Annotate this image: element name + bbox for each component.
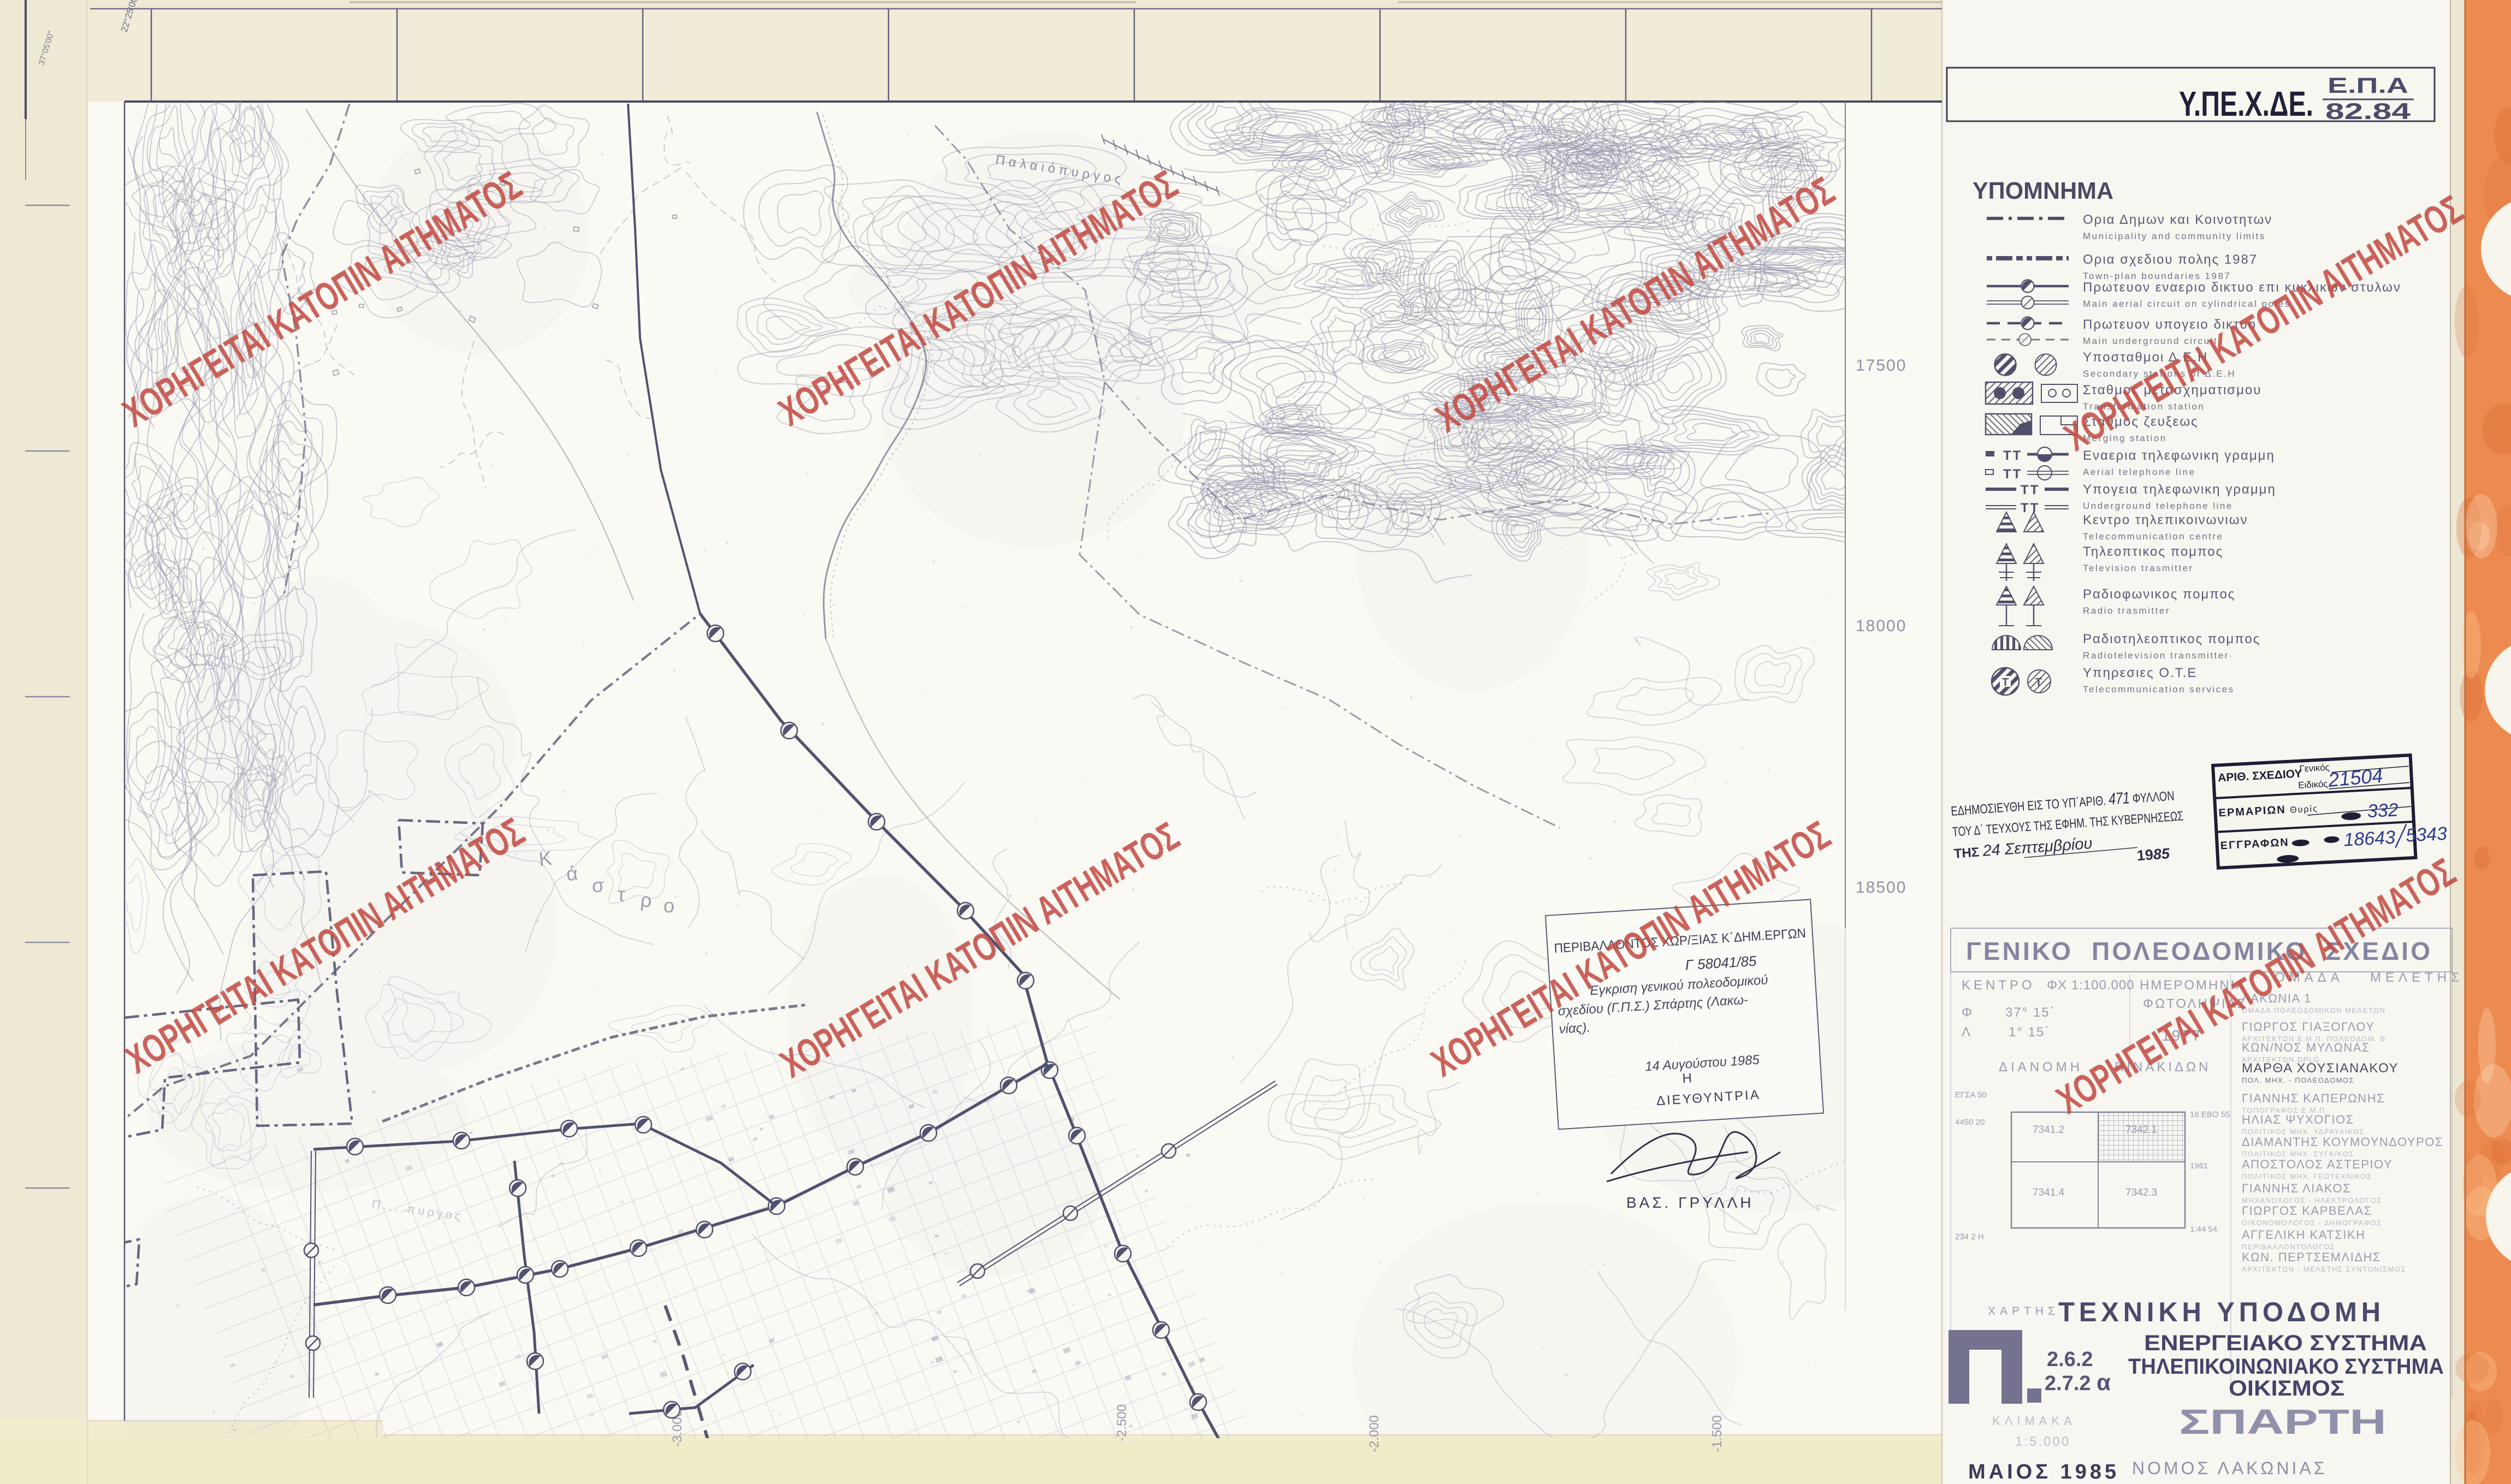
svg-text:Τηλεοπτικος πομπος: Τηλεοπτικος πομπος [2083, 544, 2223, 559]
svg-text:Ορια Δημων και Κοινοτητων: Ορια Δημων και Κοινοτητων [2083, 212, 2272, 227]
svg-text:ΕΝΕΡΓΕΙΑΚΟ ΣΥΣΤΗΜΑ: ΕΝΕΡΓΕΙΑΚΟ ΣΥΣΤΗΜΑ [2144, 1331, 2427, 1355]
svg-text:ρ: ρ [639, 888, 653, 912]
svg-text:332: 332 [2367, 799, 2399, 822]
svg-text:7341.2: 7341.2 [2033, 1124, 2064, 1136]
svg-text:2.7.2 α: 2.7.2 α [2045, 1369, 2111, 1395]
svg-text:Γενικός: Γενικός [2299, 762, 2330, 774]
svg-text:Η: Η [1682, 1071, 1692, 1086]
svg-text:234 2 Η: 234 2 Η [1955, 1232, 1984, 1242]
svg-text:ΣΠΑΡΤΗ: ΣΠΑΡΤΗ [2179, 1402, 2386, 1441]
svg-text:82.84: 82.84 [2325, 98, 2411, 124]
svg-text:Κεντρο τηλεπικοινωνιων: Κεντρο τηλεπικοινωνιων [2083, 513, 2248, 527]
svg-text:17500: 17500 [1856, 357, 1906, 375]
svg-text:Κ: Κ [538, 847, 553, 870]
svg-text:Ορια σχεδιου πολης 1987: Ορια σχεδιου πολης 1987 [2083, 252, 2258, 267]
svg-text:σ: σ [592, 874, 604, 897]
svg-text:Υπογεια τηλεφωνικη γραμμη: Υπογεια τηλεφωνικη γραμμη [2083, 482, 2276, 497]
svg-text:ΟΙΚΙΣΜΟΣ: ΟΙΚΙΣΜΟΣ [2229, 1376, 2344, 1400]
svg-text:Radiotelevision transmitter·: Radiotelevision transmitter· [2083, 650, 2234, 661]
svg-text:ΔΙΑΜΑΝΤΗΣ ΚΟΥΜΟΥΝΔΟΥΡΟΣ: ΔΙΑΜΑΝΤΗΣ ΚΟΥΜΟΥΝΔΟΥΡΟΣ [2242, 1135, 2443, 1149]
svg-text:Φ: Φ [1962, 1005, 1973, 1020]
svg-text:ΥΠΟΜΝΗΜΑ: ΥΠΟΜΝΗΜΑ [1973, 177, 2113, 204]
svg-text:Telecommunication centre: Telecommunication centre [2083, 531, 2223, 542]
svg-text:ΤΤ: ΤΤ [2003, 448, 2022, 463]
svg-text:ΤΤ: ΤΤ [2003, 467, 2022, 482]
svg-text:1985: 1985 [2136, 845, 2171, 864]
svg-text:Ραδιοτηλεοπτικος πομπος: Ραδιοτηλεοπτικος πομπος [2083, 632, 2260, 646]
svg-text:1961: 1961 [2190, 1161, 2208, 1171]
svg-text:2.6.2: 2.6.2 [2047, 1348, 2093, 1371]
svg-text:1:5.000: 1:5.000 [2015, 1434, 2070, 1449]
svg-text:ΓΙΩΡΓΟΣ ΚΑΡΒΕΛΑΣ: ΓΙΩΡΓΟΣ ΚΑΡΒΕΛΑΣ [2242, 1204, 2372, 1218]
svg-text:ΦΧ 1:100.000: ΦΧ 1:100.000 [2047, 978, 2135, 993]
svg-text:ΧΑΡΤΗΣ: ΧΑΡΤΗΣ [1988, 1305, 2059, 1317]
svg-text:7342.3: 7342.3 [2125, 1187, 2157, 1198]
svg-text:Ε.Π.Α: Ε.Π.Α [2328, 74, 2408, 98]
svg-text:ΗΛΙΑΣ ΨΥΧΟΓΙΟΣ: ΗΛΙΑΣ ΨΥΧΟΓΙΟΣ [2242, 1113, 2354, 1126]
svg-text:ΕΓΣΑ 50: ΕΓΣΑ 50 [1955, 1090, 1987, 1100]
svg-text:Telecommunication services: Telecommunication services [2083, 684, 2235, 694]
svg-text:Aerial telephone line: Aerial telephone line [2083, 467, 2196, 477]
svg-text:ΓΙΑΝΝΗΣ ΛΙΑΚΟΣ: ΓΙΑΝΝΗΣ ΛΙΑΚΟΣ [2242, 1182, 2351, 1195]
svg-text:Εναερια τηλεφωνικη γραμμη: Εναερια τηλεφωνικη γραμμη [2083, 448, 2275, 463]
svg-text:4450 20: 4450 20 [1955, 1118, 1985, 1127]
svg-text:ΚΕΝΤΡΟ: ΚΕΝΤΡΟ [1962, 978, 2035, 993]
svg-text:ΒΑΣ. ΓΡΥΛΛΗ: ΒΑΣ. ΓΡΥΛΛΗ [1626, 1194, 1754, 1211]
svg-text:ΝΟΜΟΣ ΛΑΚΩΝΙΑΣ: ΝΟΜΟΣ ΛΑΚΩΝΙΑΣ [2132, 1458, 2328, 1478]
svg-text:ΓΙΩΡΓΟΣ ΓΙΑΞΟΓΛΟΥ: ΓΙΩΡΓΟΣ ΓΙΑΞΟΓΛΟΥ [2242, 1020, 2375, 1034]
svg-text:νίας).: νίας). [1559, 1020, 1591, 1036]
svg-text:ΤΤ: ΤΤ [2021, 483, 2040, 497]
svg-text:Radio trasmitter: Radio trasmitter [2083, 606, 2170, 616]
svg-text:Υ.ΠΕ.Χ.ΔΕ.: Υ.ΠΕ.Χ.ΔΕ. [2179, 84, 2313, 123]
svg-text:1:44 54: 1:44 54 [2190, 1225, 2217, 1234]
svg-text:21504: 21504 [2327, 764, 2384, 791]
svg-text:18643: 18643 [2343, 827, 2396, 851]
svg-text:ΠΟΛΙΤΙΚΟΣ ΜΗΧ. ΥΔΡΑΥΛΙΚΟΣ: ΠΟΛΙΤΙΚΟΣ ΜΗΧ. ΥΔΡΑΥΛΙΚΟΣ [2242, 1127, 2365, 1136]
svg-text:Ειδικός: Ειδικός [2298, 779, 2328, 791]
svg-text:Υπηρεσιες Ο.Τ.Ε: Υπηρεσιες Ο.Τ.Ε [2083, 666, 2197, 680]
svg-text:ΑΠΟΣΤΟΛΟΣ ΑΣΤΕΡΙΟΥ: ΑΠΟΣΤΟΛΟΣ ΑΣΤΕΡΙΟΥ [2242, 1157, 2392, 1171]
svg-text:ΜΕΛΕΤΗΣ: ΜΕΛΕΤΗΣ [2370, 970, 2463, 985]
svg-text:τ: τ [617, 883, 626, 906]
svg-text:ΓΙΑΝΝΗΣ ΚΑΠΕΡΩΝΗΣ: ΓΙΑΝΝΗΣ ΚΑΠΕΡΩΝΗΣ [2242, 1091, 2385, 1105]
svg-text:ΤΗΛΕΠΙΚΟΙΝΩΝΙΑΚΟ ΣΥΣΤΗΜΑ: ΤΗΛΕΠΙΚΟΙΝΩΝΙΑΚΟ ΣΥΣΤΗΜΑ [2128, 1355, 2444, 1379]
svg-text:ΜΑΡΘΑ ΧΟΥΣΙΑΝΑΚΟΥ: ΜΑΡΘΑ ΧΟΥΣΙΑΝΑΚΟΥ [2242, 1061, 2399, 1076]
svg-text:ΤΤ: ΤΤ [2021, 501, 2040, 515]
svg-text:ΚΩΝ/ΝΟΣ ΜΥΛΩΝΑΣ: ΚΩΝ/ΝΟΣ ΜΥΛΩΝΑΣ [2242, 1041, 2370, 1054]
svg-text:ΑΡΧΙΤΕΚΤΩΝ - ΜΕΛΕΤΗΣ ΣΥΝΤΟΝΙΣ: ΑΡΧΙΤΕΚΤΩΝ - ΜΕΛΕΤΗΣ ΣΥΝΤΟΝΙΣΜΟΣ [2242, 1265, 2406, 1273]
svg-text:ο: ο [662, 894, 676, 917]
svg-text:1° 15΄: 1° 15΄ [2009, 1025, 2050, 1040]
svg-text:7342.1: 7342.1 [2125, 1124, 2157, 1136]
svg-text:ά: ά [566, 862, 579, 885]
svg-text:-2.500: -2.500 [1115, 1404, 1129, 1441]
svg-text:Television trasmitter: Television trasmitter [2083, 563, 2194, 573]
svg-text:ΠΕΡΙΒΑΛΛΟΝΤΟΛΟΓΟΣ: ΠΕΡΙΒΑΛΛΟΝΤΟΛΟΓΟΣ [2242, 1243, 2335, 1251]
svg-text:ΠΟΛ. ΜΗΧ. - ΠΟΛΕΟΔΟΜΟΣ: ΠΟΛ. ΜΗΧ. - ΠΟΛΕΟΔΟΜΟΣ [2242, 1076, 2354, 1084]
svg-text:T: T [2002, 676, 2009, 688]
svg-text:ΜΗΧΑΝΟΛΟΓΟΣ - ΗΛΕΚΤΡΟΛΟΓΟΣ: ΜΗΧΑΝΟΛΟΓΟΣ - ΗΛΕΚΤΡΟΛΟΓΟΣ [2242, 1196, 2382, 1204]
svg-text:ΑΓΓΕΛΙΚΗ ΚΑΤΣΙΚΗ: ΑΓΓΕΛΙΚΗ ΚΑΤΣΙΚΗ [2242, 1228, 2366, 1242]
svg-text:Municipality and community: Municipality and community limits [2083, 231, 2266, 241]
svg-text:ΠΟΛΙΤΙΚΟΣ ΜΗΧ. ΣΥΓΚ/ΚΟΣ: ΠΟΛΙΤΙΚΟΣ ΜΗΧ. ΣΥΓΚ/ΚΟΣ [2242, 1150, 2354, 1158]
svg-text:ΜΑΙΟΣ 1985: ΜΑΙΟΣ 1985 [1968, 1461, 2119, 1483]
svg-text:Underground telephone line: Underground telephone line [2083, 501, 2233, 511]
svg-text:ΤΕΧΝΙΚΗ ΥΠΟΔΟΜΗ: ΤΕΧΝΙΚΗ ΥΠΟΔΟΜΗ [2058, 1297, 2385, 1327]
svg-text:18000: 18000 [1856, 617, 1906, 635]
svg-text:5343: 5343 [2405, 823, 2448, 846]
svg-text:Λ: Λ [1962, 1025, 1971, 1040]
svg-text:37° 15΄: 37° 15΄ [2005, 1005, 2056, 1020]
svg-text:18500: 18500 [1856, 878, 1906, 897]
svg-text:ΚΩΝ. ΠΕΡΤΣΕΜΛΙΔΗΣ: ΚΩΝ. ΠΕΡΤΣΕΜΛΙΔΗΣ [2242, 1250, 2381, 1264]
svg-text:Ραδιοφωνικος πομπος: Ραδιοφωνικος πομπος [2083, 587, 2235, 602]
svg-text:ΟΙΚΟΝΟΜΟΛΟΓΟΣ - ΔΗΜΟΓΡΑΦΟΣ: ΟΙΚΟΝΟΜΟΛΟΓΟΣ - ΔΗΜΟΓΡΑΦΟΣ [2242, 1219, 2382, 1227]
svg-text:T: T [2035, 676, 2042, 688]
svg-text:7341.4: 7341.4 [2033, 1187, 2065, 1198]
svg-text:ΠΟΛΙΤΙΚΟΣ ΜΗΧ. ΓΕΩΤΕΧΝΙΚΟΣ: ΠΟΛΙΤΙΚΟΣ ΜΗΧ. ΓΕΩΤΕΧΝΙΚΟΣ [2242, 1172, 2372, 1180]
svg-text:16 ΕΒΟ 55: 16 ΕΒΟ 55 [2190, 1110, 2230, 1119]
svg-text:ΚΛΙΜΑΚΑ: ΚΛΙΜΑΚΑ [1992, 1414, 2076, 1428]
